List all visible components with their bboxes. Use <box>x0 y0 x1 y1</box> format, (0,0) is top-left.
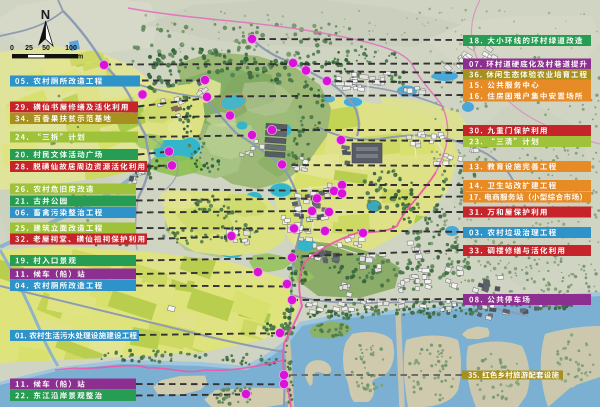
svg-text:25: 25 <box>25 45 33 52</box>
svg-text:N: N <box>41 7 50 22</box>
svg-text:m: m <box>77 54 83 61</box>
svg-text:50: 50 <box>42 45 50 52</box>
svg-text:100: 100 <box>65 45 77 52</box>
svg-text:0: 0 <box>10 45 14 52</box>
